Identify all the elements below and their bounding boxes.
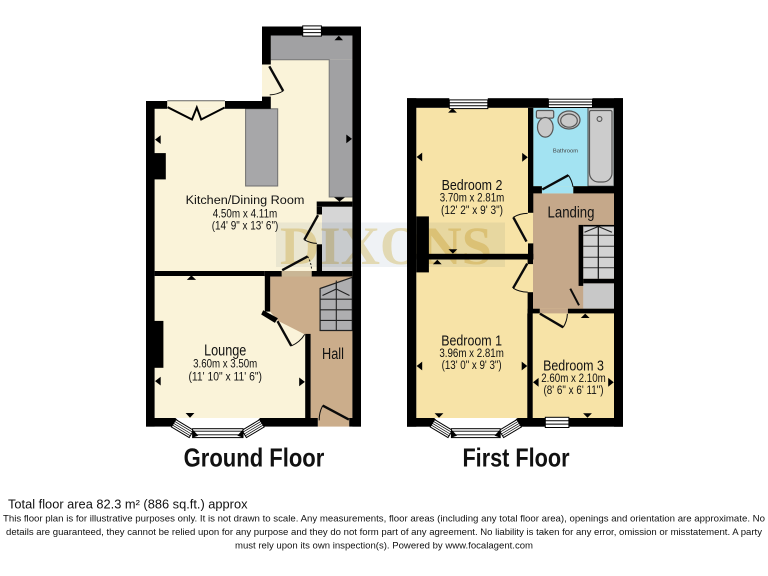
svg-text:This floor plan is for illustr: This floor plan is for illustrative purp… (3, 514, 765, 525)
svg-text:must rely upon its own inspect: must rely upon its own inspection(s). Po… (235, 541, 533, 552)
svg-text:(8' 6" x 6' 11"): (8' 6" x 6' 11") (544, 383, 604, 397)
svg-text:Total floor area 82.3 m² (886: Total floor area 82.3 m² (886 sq.ft.) ap… (8, 497, 248, 512)
svg-text:(13' 0" x 9' 3"): (13' 0" x 9' 3") (442, 358, 502, 372)
svg-text:Bathroom: Bathroom (553, 149, 578, 155)
svg-text:Landing: Landing (548, 204, 595, 221)
svg-text:Ground Floor: Ground Floor (184, 443, 325, 473)
svg-text:DIXONS: DIXONS (280, 216, 492, 276)
svg-text:Hall: Hall (322, 346, 344, 363)
svg-text:(12' 2" x 9' 3"): (12' 2" x 9' 3") (441, 203, 503, 217)
svg-text:First Floor: First Floor (462, 443, 569, 473)
svg-text:details are guaranteed, they c: details are guaranteed, they cannot be r… (6, 527, 762, 538)
svg-text:3.60m x 3.50m: 3.60m x 3.50m (193, 356, 257, 370)
svg-text:Kitchen/Dining Room: Kitchen/Dining Room (186, 193, 305, 207)
svg-text:(14' 9" x 13' 6"): (14' 9" x 13' 6") (212, 219, 279, 233)
svg-text:(11' 10" x 11' 6"): (11' 10" x 11' 6") (188, 370, 262, 384)
